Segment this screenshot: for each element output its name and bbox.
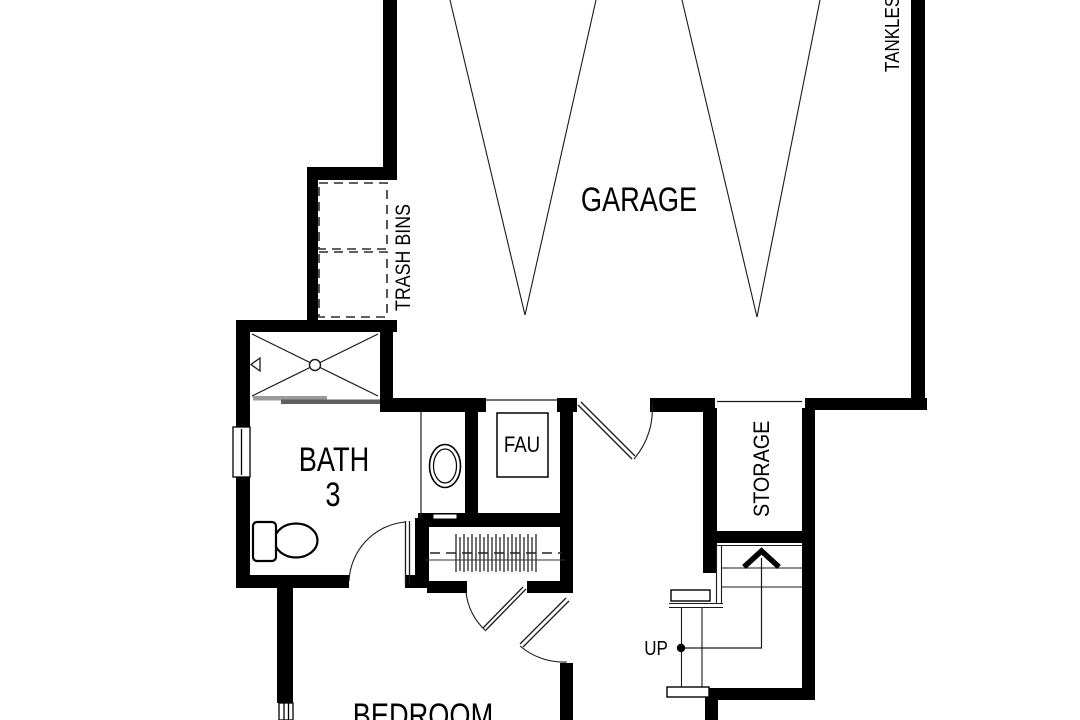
shower-door-panel <box>281 400 380 405</box>
window-icon <box>279 703 293 720</box>
bedroom-label: BEDROOM <box>353 696 493 720</box>
toilet-icon <box>253 522 318 561</box>
sink-cabinet <box>433 514 457 519</box>
garage-label: GARAGE <box>581 180 697 219</box>
sink-basin-inner <box>434 449 457 483</box>
floor-plan-drawing: GARAGE BATH 3 BEDROOM FAU UP TRASH BINS … <box>0 0 1080 720</box>
floor-plan-page: GARAGE BATH 3 BEDROOM FAU UP TRASH BINS … <box>0 0 1080 720</box>
up-label: UP <box>644 637 668 660</box>
toilet-tank <box>253 522 276 561</box>
trash-bins-label: TRASH BINS <box>392 204 416 311</box>
fau-label: FAU <box>504 434 540 458</box>
bath-number-label: 3 <box>325 475 340 514</box>
sink-icon <box>430 445 461 488</box>
shower-drain <box>310 360 321 371</box>
tankless-label: TANKLESS <box>881 0 904 72</box>
stair-landing <box>671 590 710 601</box>
stair-bottom-step <box>667 687 709 697</box>
storage-label: STORAGE <box>750 421 774 517</box>
bath-label: BATH <box>299 440 369 479</box>
stair-start-dot <box>677 644 685 652</box>
toilet-bowl <box>275 524 318 558</box>
